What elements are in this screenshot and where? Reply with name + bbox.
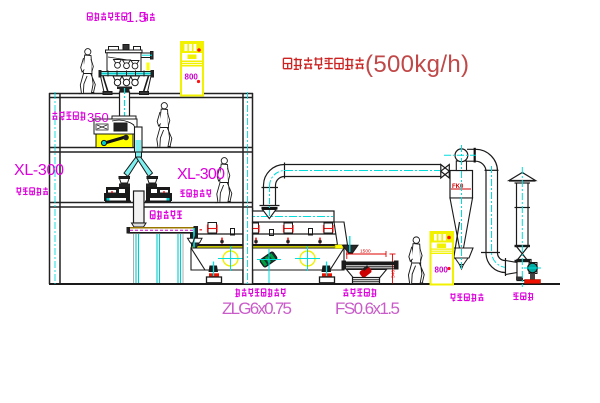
svg-text:546: 546	[391, 270, 397, 278]
svg-text:1.5: 1.5	[126, 9, 147, 26]
svg-text:1500: 1500	[360, 249, 371, 255]
svg-text:350: 350	[87, 110, 109, 125]
svg-text:800: 800	[435, 266, 449, 275]
svg-text:FS0.6x1.5: FS0.6x1.5	[335, 299, 400, 318]
svg-text:ZLG6x0.75: ZLG6x0.75	[222, 299, 292, 318]
svg-text:800: 800	[185, 73, 199, 82]
svg-text:XL-300: XL-300	[14, 162, 64, 179]
svg-text:XL-300: XL-300	[177, 166, 225, 183]
svg-text:(500kg/h): (500kg/h)	[365, 51, 469, 78]
